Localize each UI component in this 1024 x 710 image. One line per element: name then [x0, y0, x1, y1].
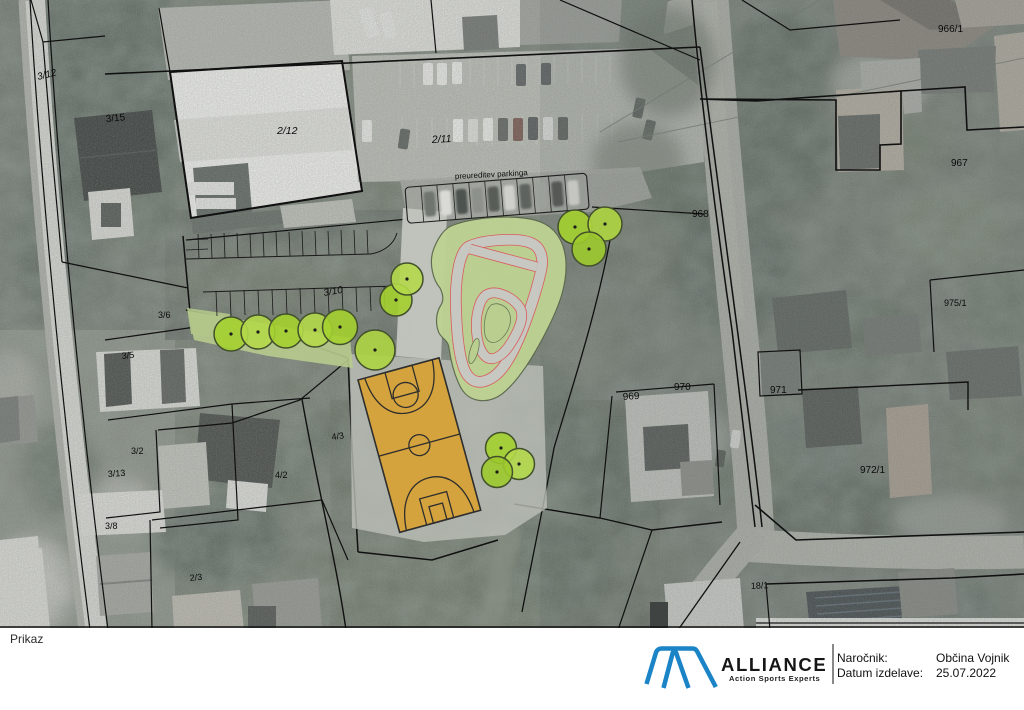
svg-text:Naročnik:: Naročnik: — [837, 651, 888, 665]
svg-text:Action Sports Experts: Action Sports Experts — [729, 674, 820, 683]
svg-text:3/8: 3/8 — [105, 521, 118, 531]
svg-text:971: 971 — [770, 385, 787, 396]
svg-text:3/2: 3/2 — [131, 446, 144, 456]
svg-text:2/12: 2/12 — [276, 125, 298, 137]
svg-text:18/1: 18/1 — [751, 580, 769, 591]
svg-text:975/1: 975/1 — [944, 298, 967, 308]
svg-text:4/3: 4/3 — [331, 430, 345, 442]
svg-text:2/11: 2/11 — [431, 133, 452, 146]
svg-text:Občina Vojnik: Občina Vojnik — [936, 651, 1010, 665]
svg-text:969: 969 — [622, 391, 640, 403]
svg-text:Prikaz: Prikaz — [10, 632, 43, 646]
svg-text:3/15: 3/15 — [105, 112, 126, 125]
svg-text:3/13: 3/13 — [107, 468, 125, 479]
svg-text:ALLIANCE: ALLIANCE — [721, 654, 827, 675]
svg-text:967: 967 — [951, 158, 968, 169]
svg-text:966/1: 966/1 — [938, 24, 963, 35]
svg-text:2/3: 2/3 — [189, 572, 202, 583]
svg-text:968: 968 — [692, 209, 709, 220]
svg-text:4/2: 4/2 — [275, 470, 288, 480]
svg-text:3/5: 3/5 — [121, 350, 134, 361]
svg-text:3/6: 3/6 — [158, 310, 171, 320]
svg-text:972/1: 972/1 — [860, 465, 885, 476]
svg-text:Datum izdelave:: Datum izdelave: — [837, 666, 923, 680]
svg-text:25.07.2022: 25.07.2022 — [936, 666, 996, 680]
svg-text:970: 970 — [674, 382, 691, 393]
